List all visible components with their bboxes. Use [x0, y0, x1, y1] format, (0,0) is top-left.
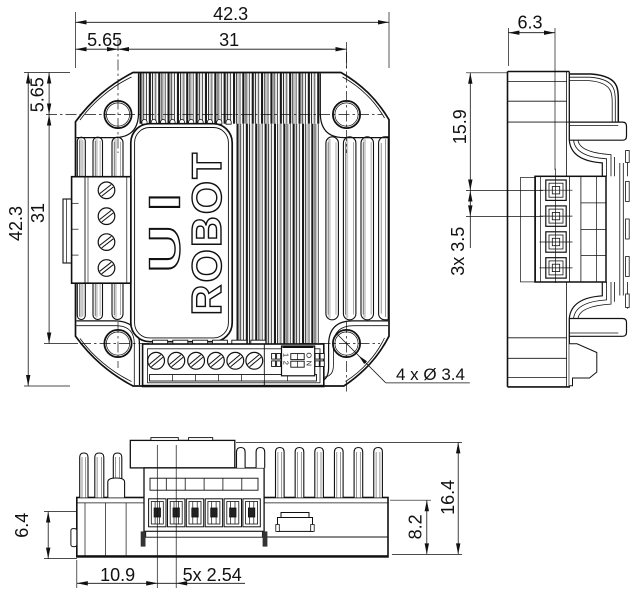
- svg-text:8.2: 8.2: [406, 514, 426, 539]
- svg-text:1: 1: [282, 353, 291, 357]
- svg-text:O: O: [304, 352, 313, 358]
- svg-text:10.9: 10.9: [100, 565, 135, 585]
- svg-text:ROBOT: ROBOT: [183, 151, 230, 316]
- svg-text:UI: UI: [139, 180, 188, 273]
- svg-text:31: 31: [219, 30, 239, 50]
- svg-text:5.65: 5.65: [87, 30, 122, 50]
- svg-text:3x 3.5: 3x 3.5: [448, 227, 468, 276]
- svg-text:4 x Ø 3.4: 4 x Ø 3.4: [396, 365, 465, 384]
- svg-text:2: 2: [282, 361, 291, 365]
- svg-text:42.3: 42.3: [6, 206, 26, 241]
- svg-text:5x 2.54: 5x 2.54: [183, 565, 242, 585]
- svg-text:5.65: 5.65: [28, 77, 48, 112]
- svg-text:42.3: 42.3: [213, 4, 248, 24]
- svg-text:15.9: 15.9: [450, 109, 470, 144]
- svg-text:31: 31: [28, 203, 48, 223]
- svg-text:6.3: 6.3: [517, 13, 542, 33]
- svg-text:N: N: [304, 361, 313, 366]
- svg-text:6.4: 6.4: [12, 513, 32, 538]
- svg-text:16.4: 16.4: [438, 480, 458, 515]
